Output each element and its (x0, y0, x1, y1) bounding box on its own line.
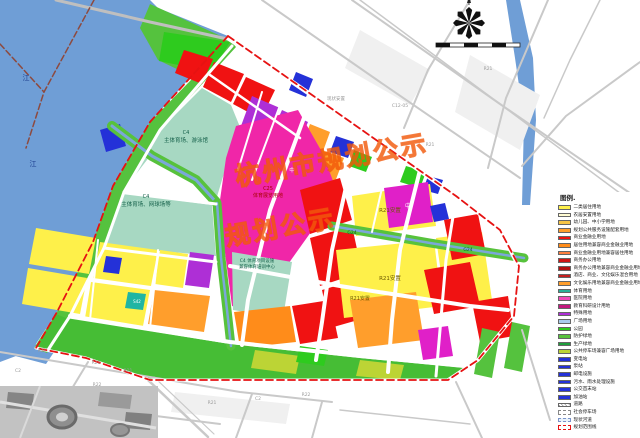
road-grey (522, 330, 550, 420)
map-label: C2 (255, 396, 261, 402)
legend-swatch (558, 274, 571, 279)
legend-swatch (558, 205, 571, 210)
map-label: 江 (30, 160, 37, 168)
legend-label: 社会停车场 (574, 410, 597, 415)
legend-label: 农居安置用地 (574, 213, 602, 218)
legend-swatch (558, 213, 571, 218)
map-label: C25 (263, 186, 273, 192)
legend-item-21: 变电站 (558, 357, 640, 362)
legend-label: 教育科研设计用地 (574, 304, 611, 309)
planning-map: C4主体育场、游泳馆C4主体育场、网球场等C4 体育项目设施兼容体育培训中心C2… (0, 0, 640, 438)
legend-label: 居住用地兼容商业金融业用地 (574, 243, 634, 248)
legend-label: 规划公共服务设施配套用地 (574, 228, 629, 233)
road-grey (544, 0, 600, 118)
legend-swatch (558, 312, 571, 317)
legend-swatch (558, 395, 571, 400)
legend-swatch (558, 251, 571, 256)
legend-label: 商务办公用地兼容商业金融业用地 (574, 266, 640, 271)
legend-item-22: 泵站 (558, 364, 640, 369)
map-label: 中 (405, 202, 411, 210)
legend-item-26: 加油站 (558, 395, 640, 400)
road-grey (456, 382, 482, 438)
legend-swatch (558, 418, 571, 423)
legend-item-4: 规划公共服务设施配套用地 (558, 228, 640, 233)
legend-item-9: 商务办公用地兼容商业金融业用地 (558, 266, 640, 271)
legend-list: 二类居住用地农居安置用地幼儿园、中小学用地规划公共服务设施配套用地商业金融业用地… (558, 205, 640, 430)
legend-label: 污水、雨水处理设施 (574, 380, 615, 385)
legend-item-25: 公交首末站 (558, 387, 640, 392)
legend-label: 广场用地 (574, 319, 592, 324)
legend-swatch (558, 334, 571, 339)
legend-swatch (558, 327, 571, 332)
legend-item-30: 规划范围线 (558, 425, 640, 430)
legend-label: 文化娱乐用地兼容商业金融业用地 (574, 281, 640, 286)
legend-swatch (558, 289, 571, 294)
legend-item-10: 酒店、商业、文化娱乐混合用地 (558, 273, 640, 278)
legend-swatch (558, 236, 571, 241)
road-grey (340, 410, 470, 424)
legend-item-8: 商务办公用地 (558, 258, 640, 263)
legend-label: 泵站 (574, 364, 583, 369)
legend-item-13: 医院用地 (558, 296, 640, 301)
map-label: C4 (183, 130, 190, 136)
legend-item-29: 现状河道 (558, 418, 640, 423)
legend-swatch (558, 349, 571, 354)
map-label: R21 (484, 66, 493, 72)
legend-label: 规划范围线 (574, 425, 597, 430)
legend-item-11: 文化娱乐用地兼容商业金融业用地 (558, 281, 640, 286)
legend-label: 道路 (574, 402, 583, 407)
legend-swatch (558, 410, 571, 415)
legend-swatch (558, 403, 571, 408)
legend-swatch (558, 372, 571, 377)
map-label: R21安置 (379, 274, 401, 282)
legend-swatch (558, 258, 571, 263)
expressway (352, 0, 640, 200)
legend-label: 二类居住用地 (574, 205, 602, 210)
legend-item-14: 教育科研设计用地 (558, 304, 640, 309)
map-label: R21 (426, 142, 435, 148)
legend-item-5: 商业金融业用地 (558, 235, 640, 240)
legend-label: 加油站 (574, 395, 588, 400)
legend-label: 变电站 (574, 357, 588, 362)
legend-item-28: 社会停车场 (558, 410, 640, 415)
map-label: R21 (38, 348, 47, 354)
map-label: 现状安置 (327, 95, 345, 102)
zone-school-3 (418, 326, 453, 360)
road-grey (522, 62, 640, 166)
legend-swatch (558, 387, 571, 392)
map-label: 中 (289, 166, 295, 174)
legend-label: 体育用地 (574, 289, 592, 294)
zone-mixed-orange-3 (148, 290, 210, 332)
map-label: G24 (463, 247, 472, 253)
map-label: 体育展览用地 (253, 192, 283, 199)
zone-utility-w (103, 256, 122, 274)
legend-item-20: 公共停车场兼容广场用地 (558, 349, 640, 354)
aerial-photo-inset (0, 386, 158, 438)
legend-label: 公交首末站 (574, 387, 597, 392)
map-label: C4 (143, 194, 150, 200)
legend-label: 公共停车场兼容广场用地 (574, 349, 625, 354)
map-label: 兼容体育培训中心 (239, 263, 275, 270)
legend-label: 幼儿园、中小学用地 (574, 220, 615, 225)
planning-map-page: C4主体育场、游泳馆C4主体育场、网球场等C4 体育项目设施兼容体育培训中心C2… (0, 0, 640, 438)
map-label: 主体育场、游泳馆 (164, 136, 209, 144)
legend-label: 商务办公用地 (574, 258, 602, 263)
map-label: R21安置 (379, 206, 401, 214)
legend-label: 酒店、商业、文化娱乐混合用地 (574, 273, 638, 278)
legend-label: 商业金融业用地 (574, 235, 606, 240)
legend-swatch (558, 365, 571, 370)
legend-item-24: 污水、雨水处理设施 (558, 380, 640, 385)
map-label: C12-05 (392, 103, 408, 109)
legend-item-1: 二类居住用地 (558, 205, 640, 210)
road-grey (312, 402, 322, 438)
legend-item-16: 广场用地 (558, 319, 640, 324)
map-label: 江 (23, 74, 30, 82)
legend-swatch (558, 425, 571, 430)
legend-swatch (558, 243, 571, 248)
legend-item-12: 体育用地 (558, 289, 640, 294)
map-label: R22 (302, 392, 311, 398)
legend-item-15: 特殊用地 (558, 311, 640, 316)
map-label: R21 (208, 400, 217, 406)
legend-item-19: 生产绿地 (558, 342, 640, 347)
legend-label: 公园 (574, 327, 583, 332)
legend-swatch (558, 319, 571, 324)
legend-title: 图例. (560, 192, 640, 202)
legend-item-27: 道路 (558, 402, 640, 407)
legend-label: 医院用地 (574, 296, 592, 301)
legend-label: 生产绿地 (574, 342, 592, 347)
legend-swatch (558, 281, 571, 286)
legend-swatch (558, 228, 571, 233)
legend-swatch (558, 266, 571, 271)
legend-item-7: 商业金融业用地兼容居住用地 (558, 251, 640, 256)
zone-commercial-s (292, 300, 338, 344)
map-label: S42 (133, 299, 141, 304)
zone-park-mid (349, 150, 372, 172)
legend-label: 邮电设施 (574, 372, 592, 377)
map-label: C4 体育项目设施 (240, 257, 275, 264)
legend-label: 现状河道 (574, 418, 592, 423)
legend-label: 防护绿地 (574, 334, 592, 339)
legend-item-17: 公园 (558, 327, 640, 332)
map-label: R21 (124, 368, 133, 374)
legend-item-18: 防护绿地 (558, 334, 640, 339)
legend-item-6: 居住用地兼容商业金融业用地 (558, 243, 640, 248)
legend-label: 商业金融业用地兼容居住用地 (574, 251, 634, 256)
scale-bar (436, 43, 520, 47)
legend-swatch (558, 304, 571, 309)
legend-panel: 图例. 二类居住用地农居安置用地幼儿园、中小学用地规划公共服务设施配套用地商业金… (558, 192, 640, 433)
map-label: C2 (15, 368, 21, 374)
legend-swatch (558, 357, 571, 362)
legend-item-23: 邮电设施 (558, 372, 640, 377)
legend-swatch (558, 342, 571, 347)
legend-item-2: 农居安置用地 (558, 213, 640, 218)
map-label: G24 (347, 230, 356, 236)
legend-item-3: 幼儿园、中小学用地 (558, 220, 640, 225)
map-label: R21 (92, 360, 101, 366)
legend-label: 特殊用地 (574, 311, 592, 316)
legend-swatch (558, 296, 571, 301)
legend-swatch (558, 380, 571, 385)
map-label: R21安置 (350, 295, 370, 302)
map-label: 主体育场、网球场等 (121, 200, 171, 208)
legend-swatch (558, 220, 571, 225)
